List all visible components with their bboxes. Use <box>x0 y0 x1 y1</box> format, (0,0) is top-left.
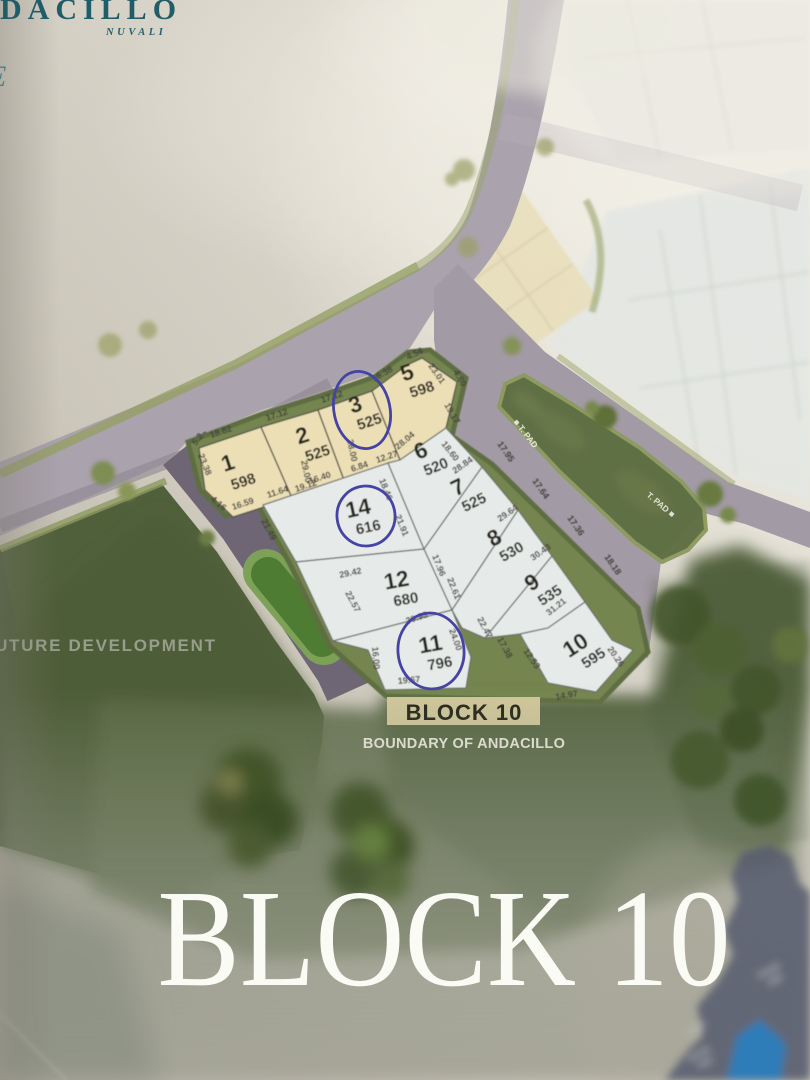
svg-text:16.00: 16.00 <box>370 646 382 669</box>
svg-text:DACILLO: DACILLO <box>0 0 182 26</box>
svg-text:BLOCK 10: BLOCK 10 <box>157 862 730 1015</box>
svg-text:E: E <box>0 60 6 93</box>
svg-text:NUVALI: NUVALI <box>105 27 167 38</box>
